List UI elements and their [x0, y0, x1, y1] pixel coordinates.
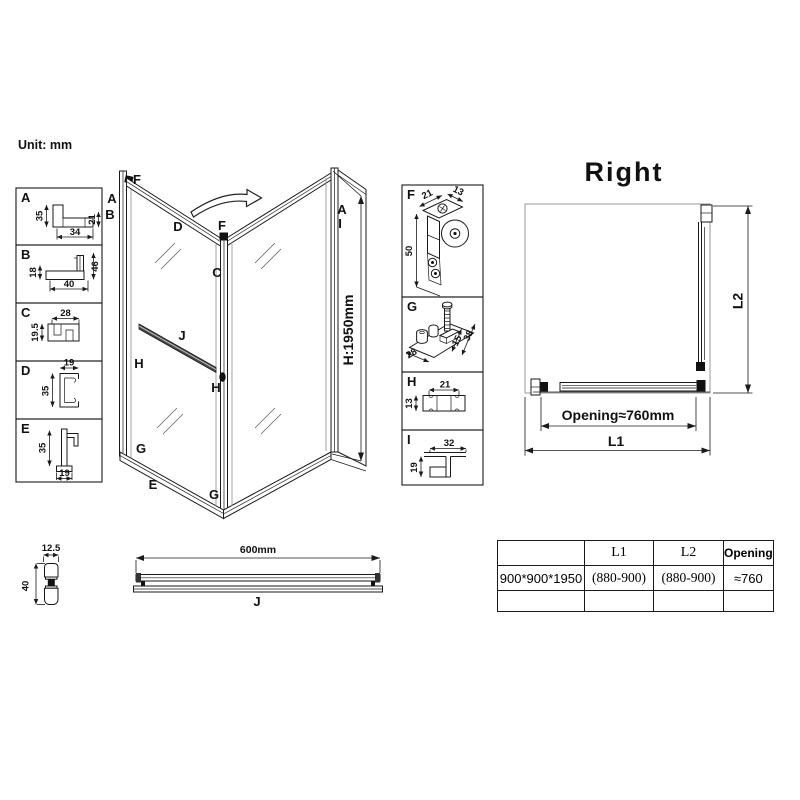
right-detail-panels: F 21 13 50 G 28 15 38: [402, 184, 483, 485]
dim-a-21: 21: [87, 214, 98, 225]
technical-drawing-page: Unit: mm A 35 21 34: [0, 0, 800, 800]
detail-e-label: E: [21, 421, 30, 436]
detail-g-label: G: [407, 299, 417, 314]
label-f-mid: F: [218, 218, 226, 233]
knob-stem: [48, 579, 55, 586]
door-swing-arrow-icon: [191, 190, 262, 218]
knob-detail: 12.5 40: [21, 543, 61, 605]
door-bottom-rail: [120, 452, 224, 519]
bar-length-dimension: 600mm: [240, 544, 276, 556]
shower-tray-outline: [525, 204, 710, 393]
knob-width-dimension: 12.5: [42, 543, 61, 554]
detail-h-label: H: [407, 374, 416, 389]
label-g-left: G: [136, 441, 146, 456]
profile-e-drawing: [62, 429, 68, 466]
profile-i-drawing: [424, 453, 466, 457]
unit-label: Unit: mm: [18, 138, 72, 152]
spec-empty-cell: [498, 591, 585, 612]
dim-c-19-5: 19.5: [30, 323, 41, 342]
spec-header-opening: Opening: [724, 541, 774, 566]
detail-i-label: I: [407, 432, 411, 447]
dim-h-21: 21: [440, 380, 451, 391]
spec-header-l1: L1: [585, 541, 654, 566]
label-h-left: H: [134, 356, 143, 371]
dim-b-40: 40: [64, 279, 75, 290]
knob-bottom: [45, 588, 59, 604]
profile-c-drawing: [48, 324, 79, 341]
spec-size-cell: 900*900*1950: [498, 566, 585, 591]
spec-empty-row: [498, 591, 774, 612]
wall-profile-top: [701, 205, 712, 222]
plan-view: Right Opening≈760mm L1 L2: [525, 157, 753, 456]
detail-panel-f: F 21 13 50: [402, 184, 483, 297]
bar-label-j: J: [253, 594, 260, 609]
plan-title: Right: [585, 157, 664, 187]
label-c-post: C: [212, 265, 222, 280]
door-top-rail: [127, 178, 224, 248]
dim-b-18: 18: [28, 267, 39, 278]
label-f-top: F: [133, 172, 141, 187]
spec-header-l2: L2: [654, 541, 724, 566]
dim-a-35: 35: [35, 210, 46, 221]
profile-h-drawing: [423, 396, 465, 412]
l1-dimension: L1: [608, 433, 625, 449]
detail-f-label: F: [407, 187, 415, 202]
dim-c-28: 28: [60, 308, 71, 319]
label-a-left: A: [107, 191, 117, 206]
knob-height-dimension: 40: [21, 581, 32, 592]
spec-header-row: L1 L2 Opening: [498, 541, 774, 566]
towel-bar-detail: 600mm J: [134, 544, 383, 609]
label-e-rail: E: [149, 477, 158, 492]
height-dimension: H:1950mm: [340, 295, 356, 366]
dim-f-50: 50: [404, 246, 415, 257]
door-end-block-left: [541, 382, 549, 392]
dim-e-19: 19: [59, 468, 70, 479]
detail-panel-d: D 19 35: [16, 358, 102, 420]
spec-l2-cell: (880-900): [654, 566, 724, 591]
detail-c-label: C: [21, 305, 31, 320]
detail-panel-a: A 35 21 34: [16, 188, 102, 245]
detail-panel-h: H 21 13: [402, 372, 483, 430]
detail-a-label: A: [21, 190, 31, 205]
opening-dimension: Opening≈760mm: [562, 407, 675, 423]
door-end-block-right: [697, 380, 706, 392]
label-d-rail: D: [173, 219, 182, 234]
dim-h-13: 13: [404, 398, 415, 409]
drawing-canvas: Unit: mm A 35 21 34: [0, 0, 800, 800]
spec-opening-cell: ≈760: [724, 566, 774, 591]
dim-d-19: 19: [64, 358, 75, 369]
l2-dimension: L2: [730, 293, 746, 310]
spec-l1-cell: (880-900): [585, 566, 654, 591]
label-a-right: A: [337, 202, 347, 217]
panel-bracket: [696, 362, 705, 371]
detail-panel-c: C 28 19.5: [16, 303, 102, 361]
label-b-left: B: [105, 207, 114, 222]
main-elevation-view: F A B D F C J H H G E G A I H:1950mm: [105, 168, 366, 519]
spec-empty-cell: [724, 591, 774, 612]
label-i-right: I: [338, 216, 342, 231]
dim-e-35: 35: [38, 442, 49, 453]
profile-d-drawing: [60, 374, 79, 408]
spec-header-blank: [498, 541, 585, 566]
dim-d-35: 35: [41, 385, 52, 396]
detail-panel-g: G 28 15 38: [402, 297, 483, 372]
knob-top: [45, 564, 59, 578]
left-detail-panels: A 35 21 34 B 18 46 40: [16, 188, 102, 482]
dim-i-19: 19: [409, 462, 420, 473]
detail-panel-e: E 35 19: [16, 419, 102, 482]
side-bottom-rail: [224, 452, 332, 519]
dim-i-32: 32: [444, 438, 455, 449]
spec-empty-cell: [585, 591, 654, 612]
top-roller-bracket-center: [220, 233, 229, 241]
dim-b-46: 46: [90, 261, 101, 272]
spec-table: L1 L2 Opening 900*900*1950 (880-900) (88…: [497, 540, 774, 612]
label-j-bar: J: [178, 328, 185, 343]
detail-b-label: B: [21, 247, 30, 262]
dim-a-34: 34: [70, 227, 81, 238]
spec-value-row: 900*900*1950 (880-900) (880-900) ≈760: [498, 566, 774, 591]
detail-panel-b: B 18 46 40: [16, 245, 102, 303]
label-g-mid: G: [209, 487, 219, 502]
detail-d-label: D: [21, 363, 30, 378]
door-panel-plan: [560, 383, 698, 392]
label-h-mid: H: [211, 380, 220, 395]
detail-panel-i: I 32 19: [402, 430, 483, 485]
spec-empty-cell: [654, 591, 724, 612]
side-top-rail: [224, 173, 332, 248]
